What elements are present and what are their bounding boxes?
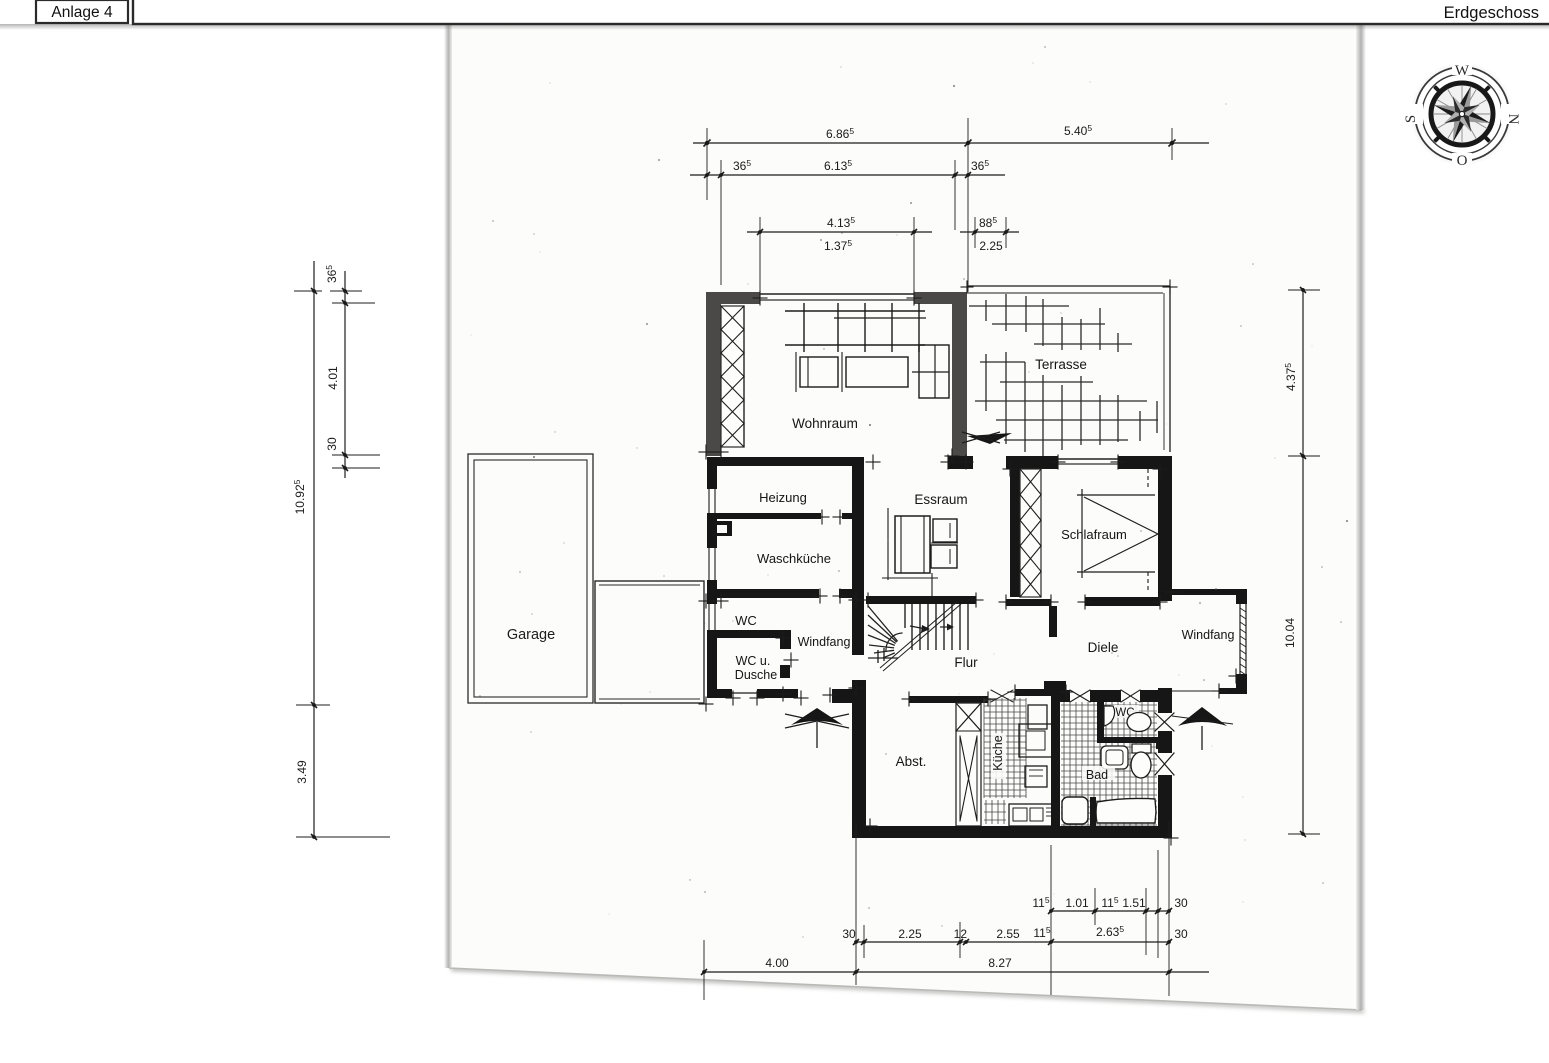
svg-text:Heizung: Heizung <box>759 490 807 505</box>
svg-text:WC u.: WC u. <box>736 654 771 668</box>
svg-text:30: 30 <box>1174 927 1188 941</box>
svg-text:Terrasse: Terrasse <box>1035 357 1087 372</box>
svg-text:Bad: Bad <box>1086 768 1108 782</box>
svg-text:Erdgeschoss: Erdgeschoss <box>1444 4 1539 22</box>
svg-text:10.04: 10.04 <box>1283 618 1297 648</box>
svg-text:1.51: 1.51 <box>1122 896 1146 910</box>
svg-text:30: 30 <box>1174 896 1188 910</box>
svg-text:12: 12 <box>954 927 968 941</box>
svg-text:W: W <box>1455 63 1470 79</box>
svg-text:Dusche: Dusche <box>735 668 777 682</box>
svg-text:4.01: 4.01 <box>326 366 340 390</box>
svg-text:2.25: 2.25 <box>979 239 1003 253</box>
svg-text:Windfang: Windfang <box>798 635 851 649</box>
svg-text:N: N <box>1505 114 1521 125</box>
svg-text:O: O <box>1457 153 1468 169</box>
svg-text:30: 30 <box>842 927 856 941</box>
svg-text:Abst.: Abst. <box>896 754 927 769</box>
svg-text:S: S <box>1403 115 1419 123</box>
svg-text:Schlafraum: Schlafraum <box>1061 527 1127 542</box>
svg-text:Essraum: Essraum <box>914 492 967 507</box>
svg-text:1.01: 1.01 <box>1065 896 1089 910</box>
svg-text:8.27: 8.27 <box>988 956 1012 970</box>
svg-text:Windfang: Windfang <box>1182 628 1235 642</box>
svg-text:Diele: Diele <box>1088 640 1119 655</box>
svg-text:WC: WC <box>735 613 757 628</box>
svg-text:Waschküche: Waschküche <box>757 551 831 566</box>
svg-text:Anlage 4: Anlage 4 <box>51 4 113 21</box>
svg-text:30: 30 <box>325 437 339 451</box>
svg-text:2.25: 2.25 <box>898 927 922 941</box>
svg-text:Flur: Flur <box>954 655 978 670</box>
svg-text:10.925: 10.925 <box>292 479 307 514</box>
svg-text:4.00: 4.00 <box>765 956 789 970</box>
svg-text:3.49: 3.49 <box>295 760 309 784</box>
svg-text:2.55: 2.55 <box>996 927 1020 941</box>
svg-text:Wohnraum: Wohnraum <box>792 416 858 431</box>
svg-text:Garage: Garage <box>507 627 555 643</box>
svg-text:Küche: Küche <box>991 735 1005 770</box>
